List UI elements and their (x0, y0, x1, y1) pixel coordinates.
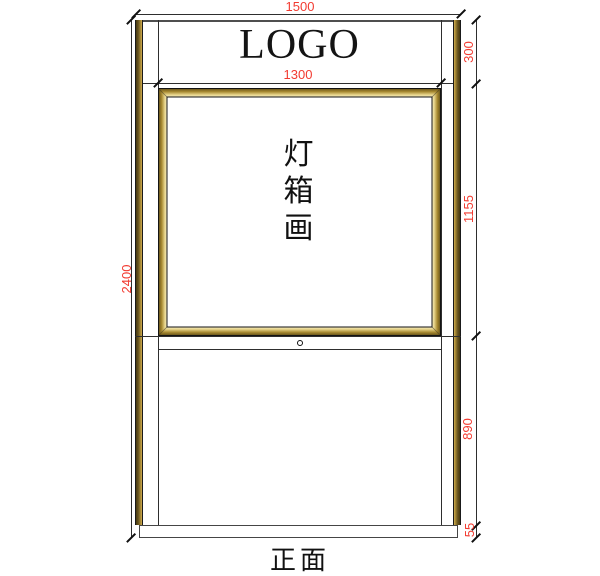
dim-label-total-width: 1500 (270, 0, 330, 14)
dim-label-inner-width: 1300 (268, 68, 328, 82)
lock-keyhole-icon (297, 340, 303, 346)
dim-label-total-height: 2400 (119, 251, 133, 307)
view-label: 正面 (150, 540, 450, 576)
dim-label-lightbox-height: 1155 (461, 181, 475, 237)
technical-drawing-canvas: 1500 2400 300 1155 890 55 LOGO 1300 (0, 0, 600, 576)
lightbox-caption-char-2: 箱 (158, 173, 441, 210)
dim-label-lower-height: 890 (460, 401, 474, 457)
header-bottom-line (143, 83, 453, 84)
logo-text: LOGO (158, 24, 441, 66)
lightbox-caption-char-1: 灯 (158, 136, 441, 173)
dim-line-right-chain (476, 20, 477, 538)
cabinet-base (139, 525, 458, 538)
lightbox-caption-char-3: 画 (158, 210, 441, 247)
dim-label-header-height: 300 (461, 24, 475, 80)
cabinet-left-post (135, 20, 143, 525)
dim-label-base-height: 55 (462, 502, 476, 558)
lightbox-bottom-line (135, 336, 461, 337)
lightbox-caption: 灯 箱 画 (158, 136, 441, 247)
lock-band-bottom-line (158, 349, 441, 350)
cabinet-right-post (453, 20, 461, 525)
